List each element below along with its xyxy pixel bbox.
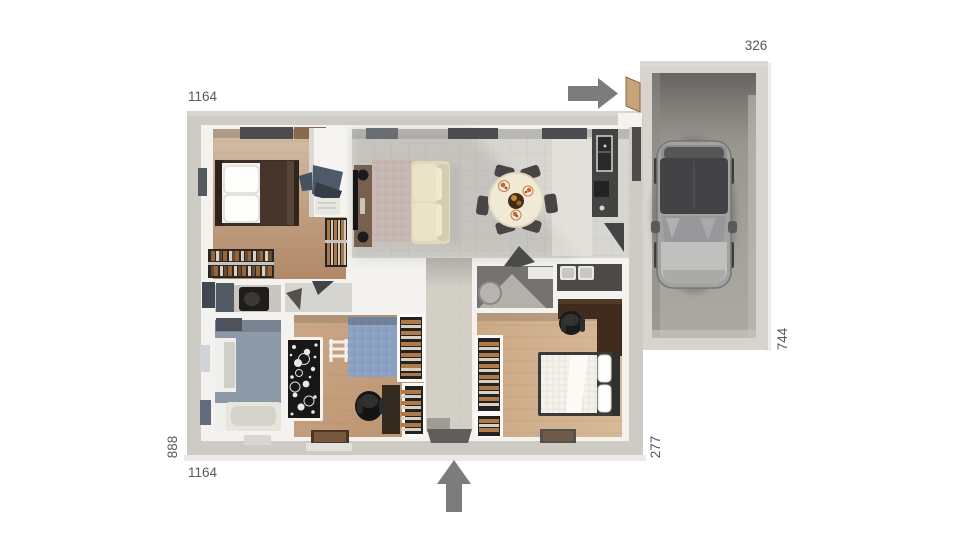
svg-text:326: 326 bbox=[745, 38, 768, 53]
svg-text:1164: 1164 bbox=[188, 465, 218, 480]
svg-text:744: 744 bbox=[775, 327, 790, 350]
svg-text:277: 277 bbox=[648, 436, 663, 459]
svg-text:888: 888 bbox=[165, 436, 180, 459]
svg-text:1164: 1164 bbox=[188, 89, 218, 104]
